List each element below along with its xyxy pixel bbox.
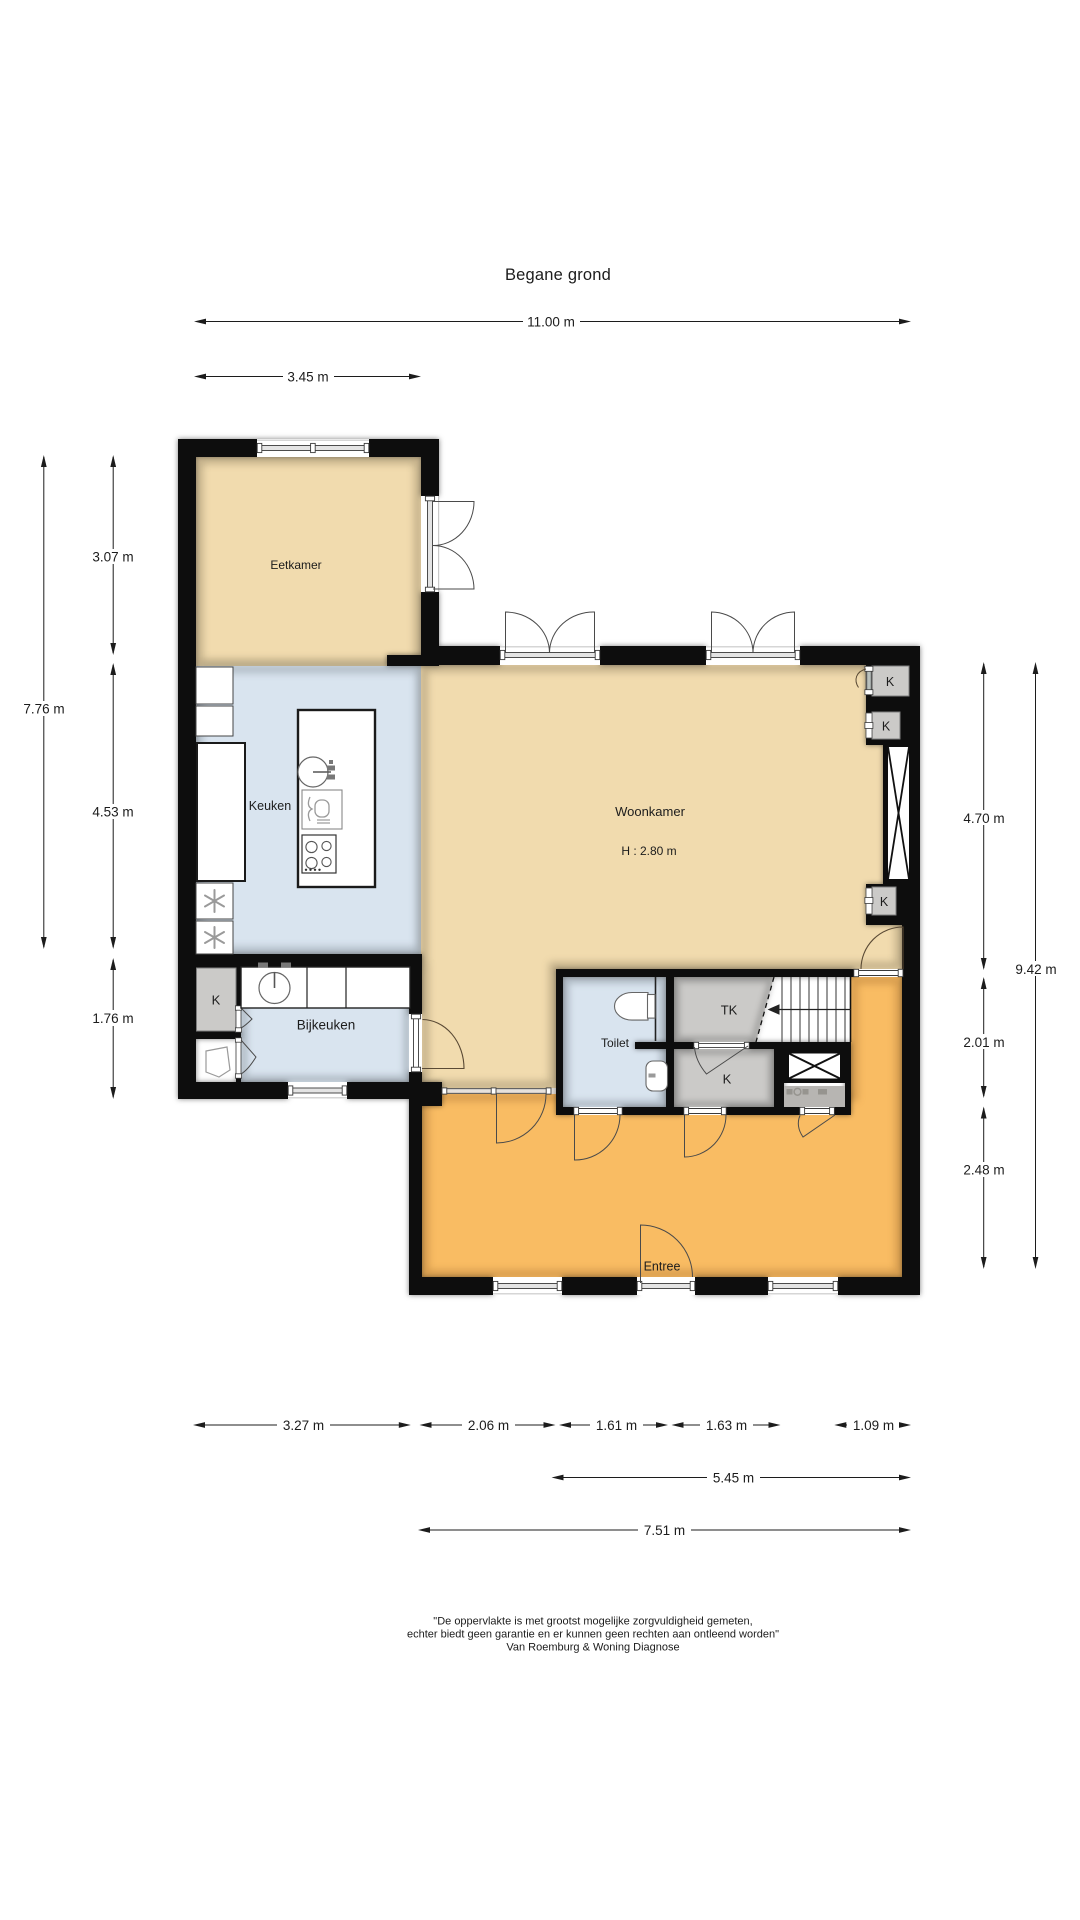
svg-text:1.76 m: 1.76 m <box>92 1011 133 1026</box>
svg-text:7.51 m: 7.51 m <box>644 1523 685 1538</box>
svg-text:2.06 m: 2.06 m <box>468 1418 509 1433</box>
svg-text:4.53 m: 4.53 m <box>92 805 133 820</box>
svg-text:Eetkamer: Eetkamer <box>270 558 321 572</box>
svg-text:Entree: Entree <box>644 1260 681 1274</box>
svg-text:K: K <box>212 993 221 1008</box>
svg-text:9.42 m: 9.42 m <box>1015 962 1056 977</box>
svg-text:1.63 m: 1.63 m <box>706 1418 747 1433</box>
svg-text:7.76 m: 7.76 m <box>23 702 64 717</box>
svg-text:3.07 m: 3.07 m <box>92 550 133 565</box>
svg-text:Bijkeuken: Bijkeuken <box>297 1018 356 1033</box>
svg-text:Keuken: Keuken <box>249 799 291 813</box>
svg-text:2.48 m: 2.48 m <box>963 1163 1004 1178</box>
svg-text:K: K <box>886 675 895 689</box>
svg-text:K: K <box>723 1072 732 1087</box>
svg-text:Woonkamer: Woonkamer <box>615 804 686 819</box>
svg-text:2.01 m: 2.01 m <box>963 1035 1004 1050</box>
svg-text:Toilet: Toilet <box>601 1036 630 1050</box>
svg-text:TK: TK <box>721 1003 738 1018</box>
svg-text:Van Roemburg & Woning Diagnose: Van Roemburg & Woning Diagnose <box>506 1642 679 1654</box>
svg-text:"De oppervlakte is met grootst: "De oppervlakte is met grootst mogelijke… <box>433 1616 752 1628</box>
svg-text:K: K <box>882 720 891 734</box>
svg-text:3.45 m: 3.45 m <box>287 370 328 385</box>
svg-text:1.61 m: 1.61 m <box>596 1418 637 1433</box>
svg-text:4.70 m: 4.70 m <box>963 811 1004 826</box>
svg-text:echter biedt geen garantie en: echter biedt geen garantie en er kunnen … <box>407 1629 779 1641</box>
svg-text:11.00 m: 11.00 m <box>527 315 575 330</box>
svg-text:1.09 m: 1.09 m <box>853 1418 894 1433</box>
svg-text:H : 2.80 m: H : 2.80 m <box>621 844 676 858</box>
svg-text:K: K <box>880 895 889 909</box>
svg-text:Begane grond: Begane grond <box>505 266 611 284</box>
svg-text:3.27 m: 3.27 m <box>283 1418 324 1433</box>
svg-text:5.45 m: 5.45 m <box>713 1471 754 1486</box>
